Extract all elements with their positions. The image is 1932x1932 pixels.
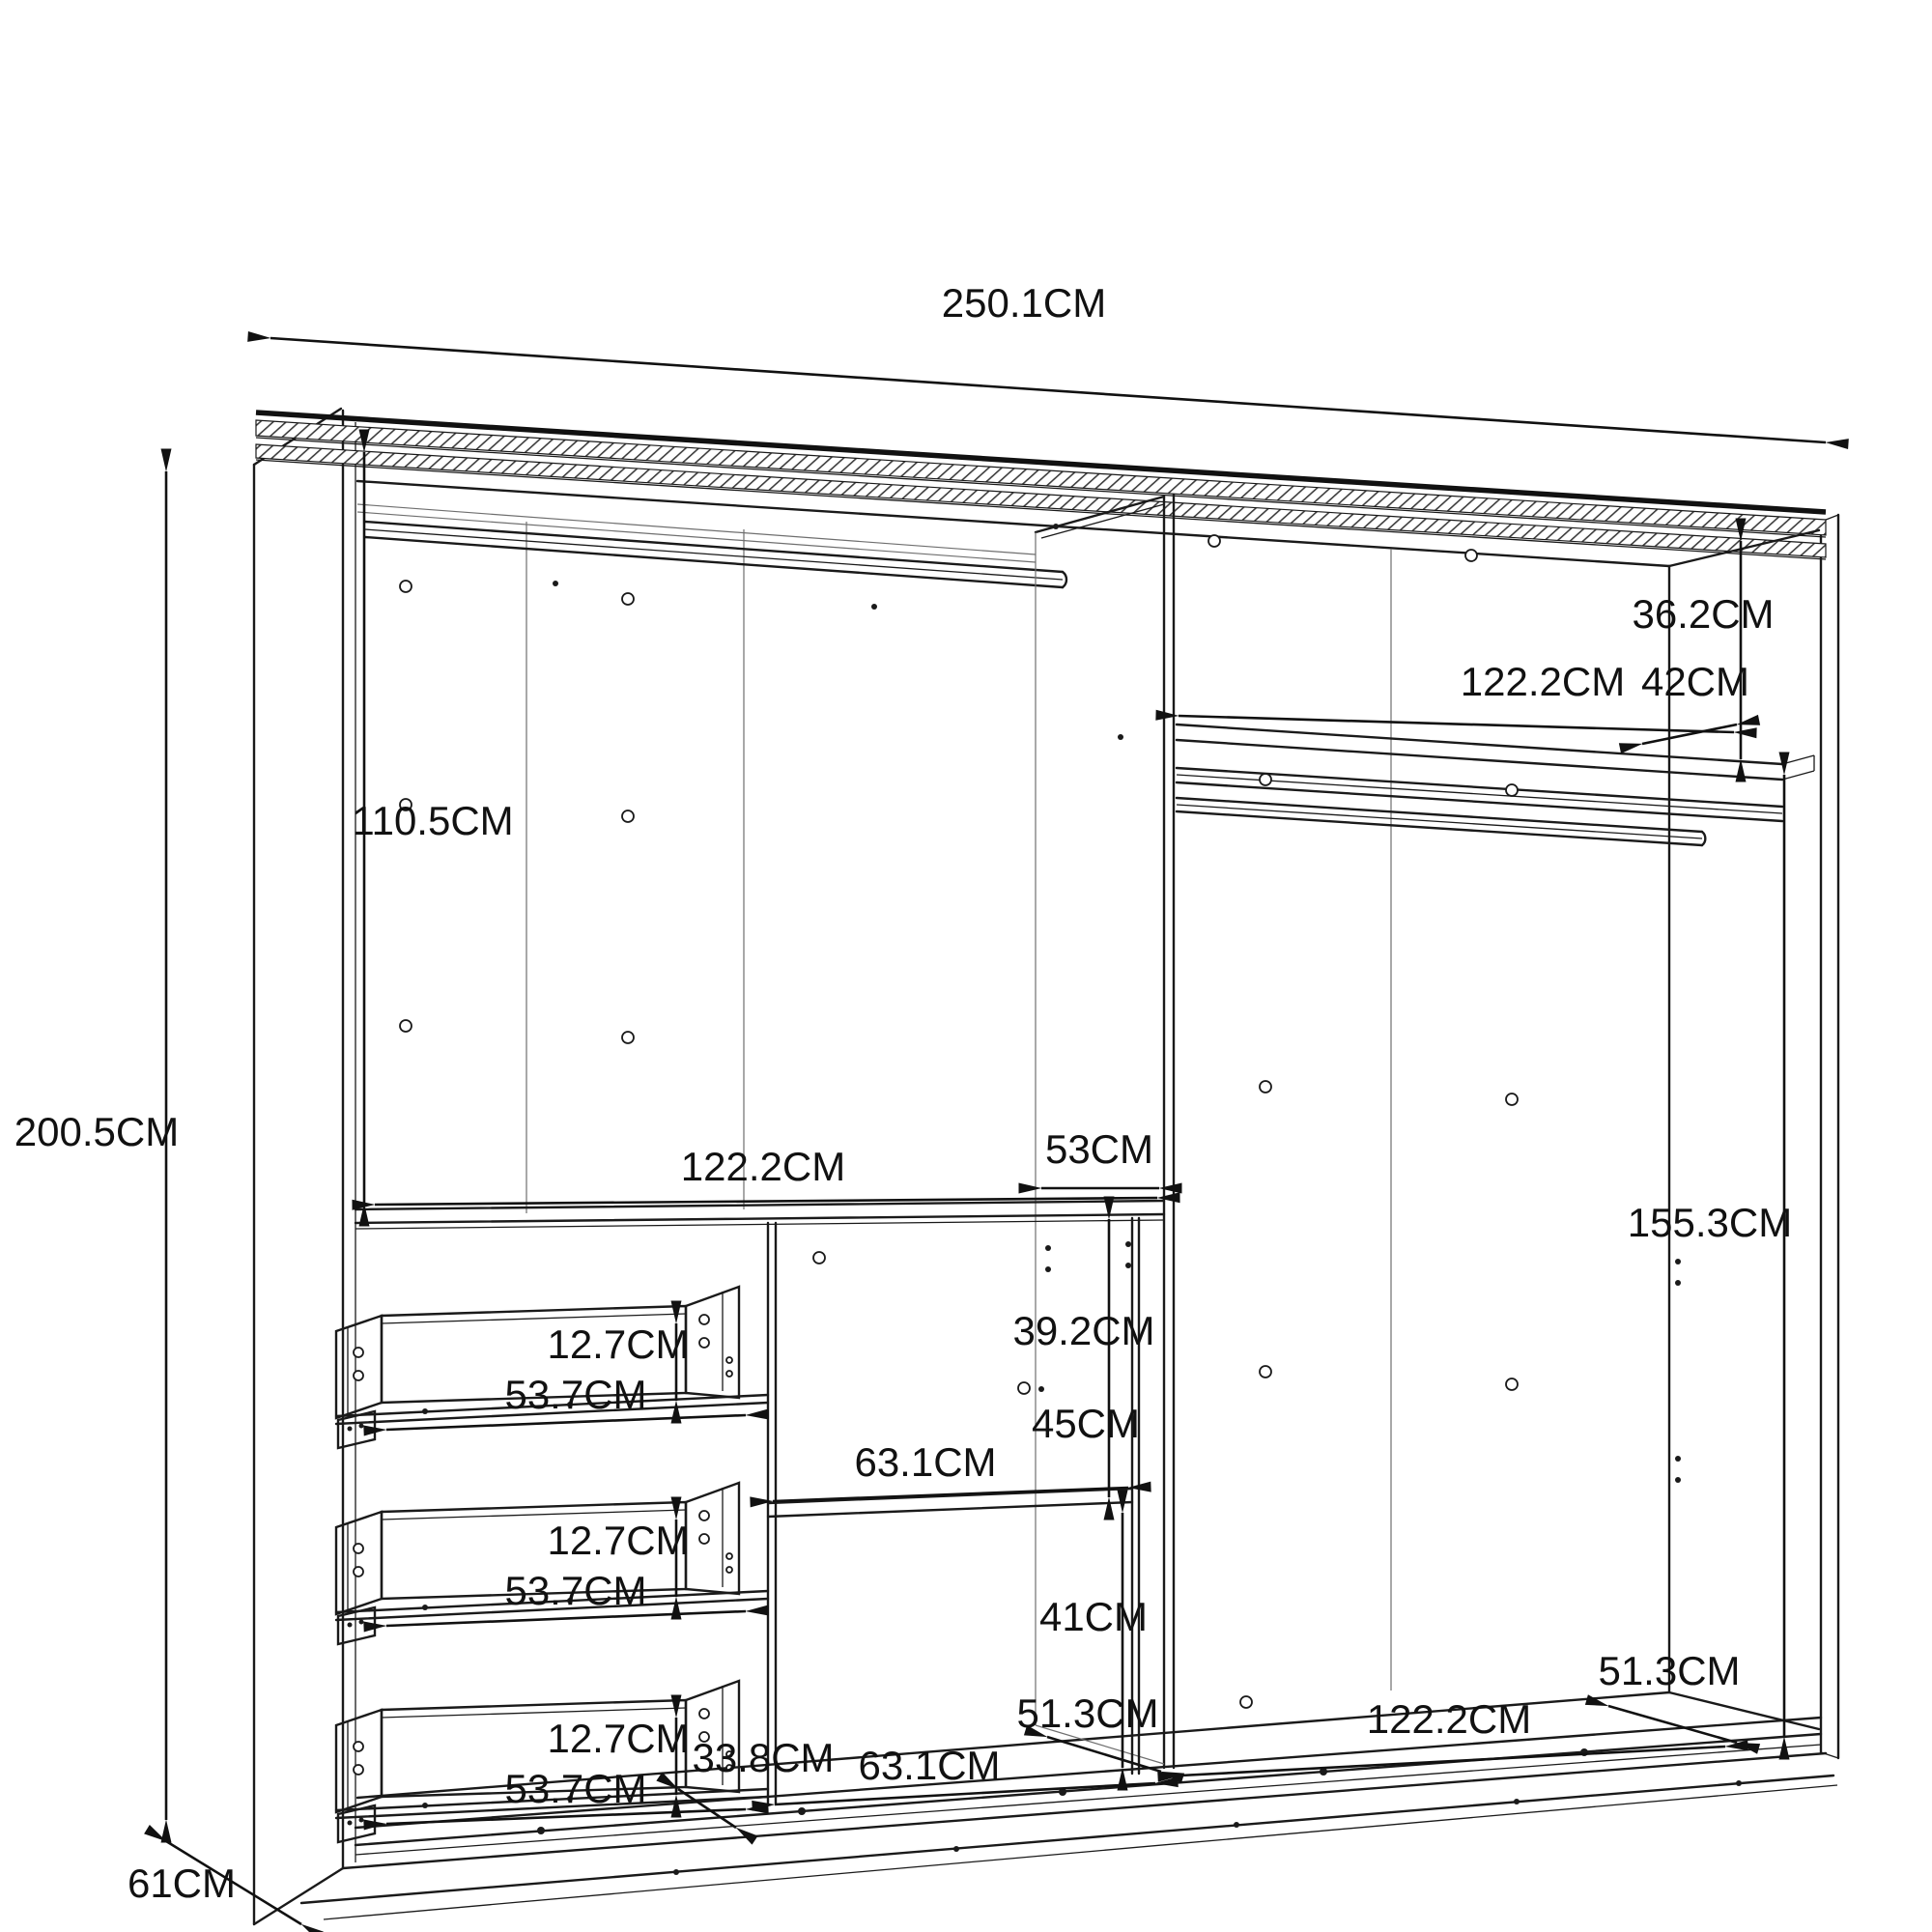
dim-mid-depth: 51.3CM bbox=[1016, 1690, 1158, 1736]
wardrobe-dimension-diagram: 12.7CM 53.7CM 12.7CM 53.7CM 12.7CM 53.7C… bbox=[0, 0, 1932, 1932]
dim-mid-shelf-width: 63.1CM bbox=[854, 1439, 996, 1485]
left-hanging-rod bbox=[357, 504, 1066, 587]
dim-left-hanging-height: 110.5CM bbox=[352, 798, 513, 843]
dim-drawer1-width: 53.7CM bbox=[504, 1372, 646, 1417]
dimension-labels: 250.1CM 200.5CM 61CM 110.5CM 122.2CM 53C… bbox=[14, 280, 1792, 1906]
right-hanging-rod-lower bbox=[1177, 798, 1705, 845]
dim-drawer3-width: 53.7CM bbox=[504, 1766, 646, 1811]
cabinet-left-side-panel bbox=[254, 409, 355, 1924]
drawer-2: 12.7CM 53.7CM bbox=[336, 1483, 768, 1644]
sliding-door-tracks bbox=[256, 412, 1826, 559]
dim-right-shelf-depth: 42CM bbox=[1641, 659, 1749, 704]
dim-mid-floor-width: 63.1CM bbox=[858, 1743, 1000, 1788]
dim-mid-side-depth: 33.8CM bbox=[692, 1735, 834, 1780]
dim-mid-upper-height: 39.2CM bbox=[1012, 1308, 1154, 1353]
dim-left-section-width: 122.2CM bbox=[681, 1144, 845, 1189]
dim-right-floor-depth: 51.3CM bbox=[1598, 1648, 1740, 1693]
dim-right-top-offset: 36.2CM bbox=[1632, 591, 1774, 637]
dim-overall-depth: 61CM bbox=[128, 1861, 236, 1906]
dim-drawer1-height: 12.7CM bbox=[547, 1321, 689, 1367]
dim-drawer2-height: 12.7CM bbox=[547, 1518, 689, 1563]
dimension-lines bbox=[166, 338, 1826, 1924]
dim-drawer2-width: 53.7CM bbox=[504, 1568, 646, 1613]
dim-mid-shelf-gap-upper: 45CM bbox=[1032, 1401, 1140, 1446]
dim-right-width-top: 122.2CM bbox=[1461, 659, 1625, 704]
cabinet-right-side-panel bbox=[1821, 515, 1838, 1758]
dim-right-width-bottom: 122.2CM bbox=[1367, 1696, 1531, 1742]
dim-divider-depth: 53CM bbox=[1045, 1126, 1153, 1172]
diagram-canvas: 12.7CM 53.7CM 12.7CM 53.7CM 12.7CM 53.7C… bbox=[0, 0, 1932, 1932]
dim-mid-shelf-gap-lower: 41CM bbox=[1039, 1594, 1148, 1639]
dim-overall-width: 250.1CM bbox=[942, 280, 1106, 326]
dim-drawer3-height: 12.7CM bbox=[547, 1716, 689, 1761]
dim-overall-height: 200.5CM bbox=[14, 1109, 179, 1154]
drawer-1: 12.7CM 53.7CM bbox=[336, 1287, 768, 1448]
dim-right-hanging-height: 155.3CM bbox=[1628, 1200, 1792, 1245]
